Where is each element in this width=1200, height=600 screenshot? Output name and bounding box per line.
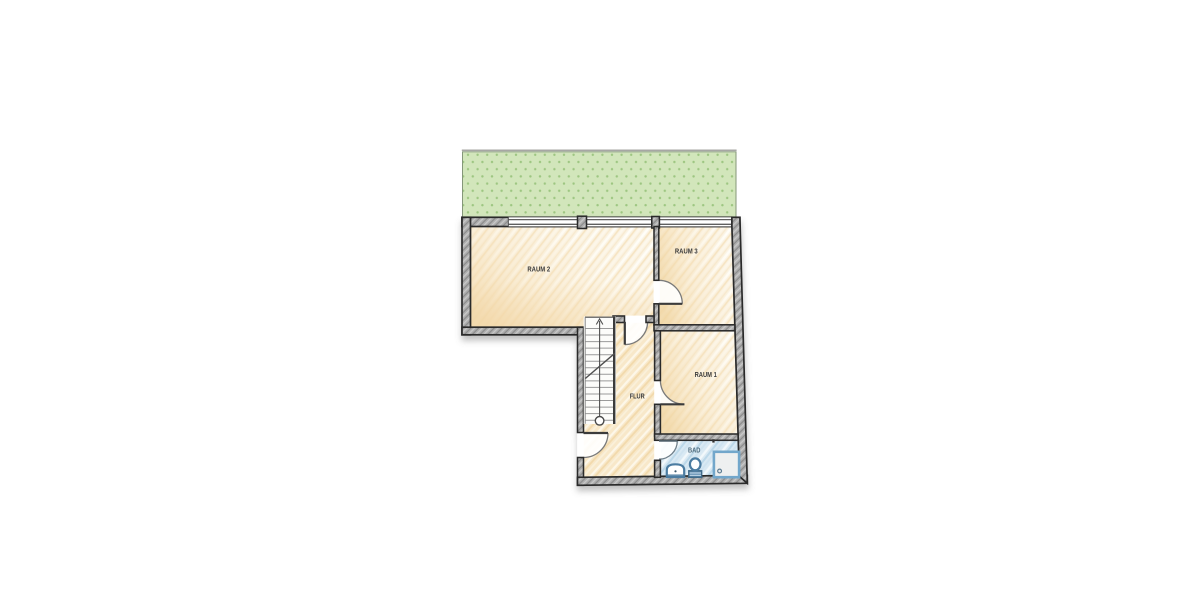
svg-text:RAUM 1: RAUM 1 [695, 370, 717, 379]
svg-text:BAD: BAD [688, 448, 700, 455]
svg-text:FLUR: FLUR [630, 392, 646, 401]
svg-text:RAUM 3: RAUM 3 [675, 246, 698, 255]
svg-text:RAUM 2: RAUM 2 [527, 265, 550, 274]
